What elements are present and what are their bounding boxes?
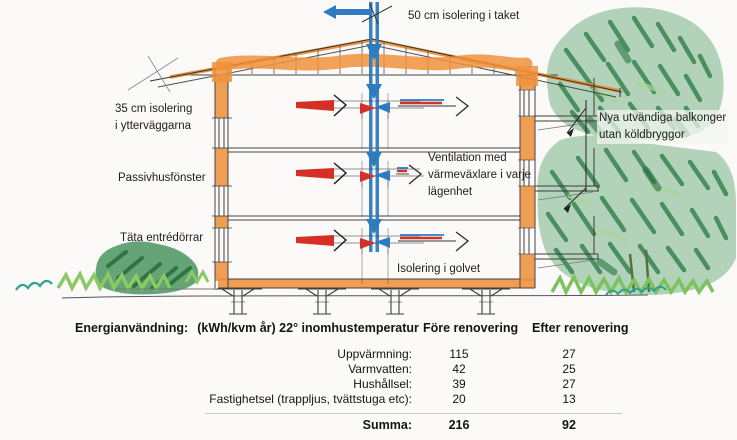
row-value-before: 42 [426,362,492,376]
row-value-before: 39 [426,377,492,391]
table-row: Varmvatten: 42 25 [0,362,737,377]
column-header-before: Före renovering [423,321,518,335]
row-label: Hushållsel: [0,377,412,391]
table-title-units: (kWh/kvm år) 22° inomhustemperatur [197,321,419,335]
table-row: Uppvärmning: 115 27 [0,347,737,362]
summary-label: Summa: [0,418,412,432]
summary-row: Summa: 216 92 [0,418,737,433]
row-value-before: 115 [426,347,492,361]
row-value-before: 20 [426,392,492,406]
row-value-after: 27 [536,377,602,391]
row-value-after: 13 [536,392,602,406]
summary-value-after: 92 [536,418,602,432]
row-value-after: 27 [536,347,602,361]
passive-house-renovation-diagram: 50 cm isolering i taket 35 cm isolering … [0,0,737,440]
row-label: Varmvatten: [0,362,412,376]
table-row: Fastighetsel (trappljus, tvättstuga etc)… [0,392,737,407]
row-value-after: 25 [536,362,602,376]
row-label: Uppvärmning: [0,347,412,361]
table-title: Energianvändning:(kWh/kvm år) 22° inomhu… [75,321,419,335]
table-title-text: Energianvändning: [75,321,188,335]
column-header-after: Efter renovering [532,321,629,335]
energy-table: Energianvändning:(kWh/kvm år) 22° inomhu… [0,0,737,440]
summary-value-before: 216 [426,418,492,432]
summary-separator [205,413,622,414]
row-label: Fastighetsel (trappljus, tvättstuga etc)… [0,392,412,406]
table-row: Hushållsel: 39 27 [0,377,737,392]
